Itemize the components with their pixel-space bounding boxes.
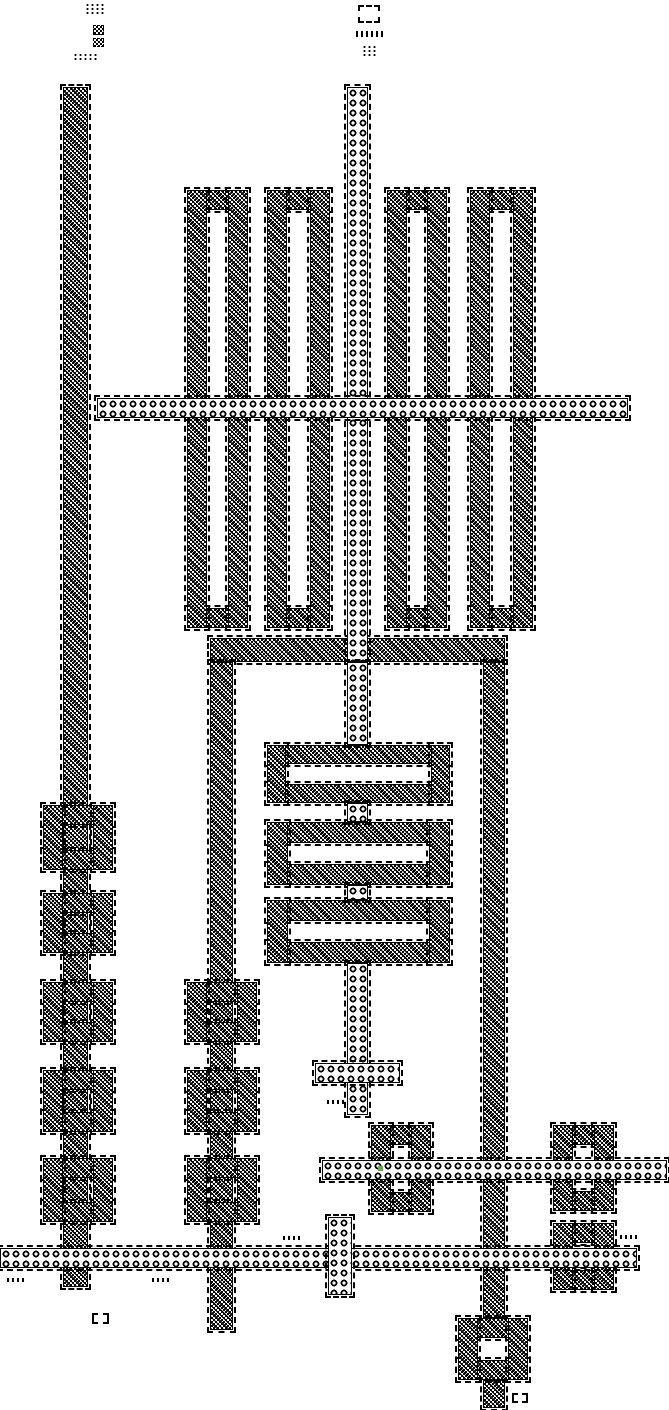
short-crossing: [328, 1217, 352, 1295]
left-box-4-right: [93, 1070, 113, 1132]
left-box-3-right: [93, 982, 113, 1042]
inner-loop-1-top: [267, 745, 450, 764]
left-box-1-right: [93, 805, 113, 870]
mid-block-right-leg: [483, 662, 505, 1318]
col2-box-3-right: [237, 1158, 257, 1222]
inner-loop-2-right: [429, 822, 450, 885]
left-box-4-left: [43, 1070, 63, 1132]
left-box-2-right: [93, 893, 113, 953]
inner-loop-3-left: [267, 900, 288, 963]
stream-e: [152, 1278, 170, 1282]
center-stream-mid-2: [347, 803, 368, 822]
glyph-eater-b: [93, 38, 104, 47]
center-stream-top: [347, 87, 368, 662]
center-stream-low: [347, 963, 368, 1115]
inner-loop-1-right: [431, 745, 450, 803]
inner-loop-2-bottom: [267, 864, 450, 885]
life-pattern-canvas[interactable]: [0, 0, 669, 1410]
marker-cell: [378, 1166, 383, 1171]
small-box-a: [92, 1313, 109, 1324]
inner-loop-3-bottom: [267, 942, 450, 963]
glyph-eater-a: [93, 25, 104, 35]
center-stream-mid-1: [347, 662, 368, 745]
col2-box-3-left: [187, 1158, 207, 1222]
glyph-arrows-b: [362, 45, 378, 58]
glyph-loop: [358, 5, 380, 23]
cross-bar: [315, 1063, 400, 1083]
bottom-box-right: [508, 1318, 528, 1380]
glyph-arrow-line: [73, 53, 99, 62]
left-box-5-right: [93, 1158, 113, 1222]
glyph-arrows-a: [85, 3, 105, 16]
right-leg-tail: [483, 1380, 505, 1408]
col2-box-1-left: [187, 982, 207, 1042]
left-box-2-left: [43, 893, 63, 953]
glyph-dash-line: [356, 31, 383, 37]
left-box-3-left: [43, 982, 63, 1042]
bottom-box-left: [458, 1318, 478, 1380]
bottom-bus: [0, 1248, 637, 1268]
right-bus: [322, 1160, 667, 1180]
left-box-1-left: [43, 805, 63, 870]
top-bus: [97, 398, 628, 418]
inner-loop-2-top: [267, 822, 450, 843]
col2-box-1-right: [237, 982, 257, 1042]
left-bus-vertical: [63, 87, 88, 1287]
center-stream-mid-3: [347, 885, 368, 900]
inner-loop-1-bottom: [267, 784, 450, 803]
inner-loop-2-left: [267, 822, 288, 885]
stream-a: [327, 1100, 344, 1104]
stream-d: [7, 1278, 25, 1282]
stream-b: [283, 1236, 301, 1240]
col2-box-2-right: [237, 1070, 257, 1132]
col2-box-2-left: [187, 1070, 207, 1132]
inner-loop-3-right: [429, 900, 450, 963]
inner-loop-3-top: [267, 900, 450, 921]
left-box-5-left: [43, 1158, 63, 1222]
small-box-b: [512, 1393, 528, 1403]
inner-loop-1-left: [267, 745, 286, 803]
stream-c: [620, 1235, 638, 1239]
